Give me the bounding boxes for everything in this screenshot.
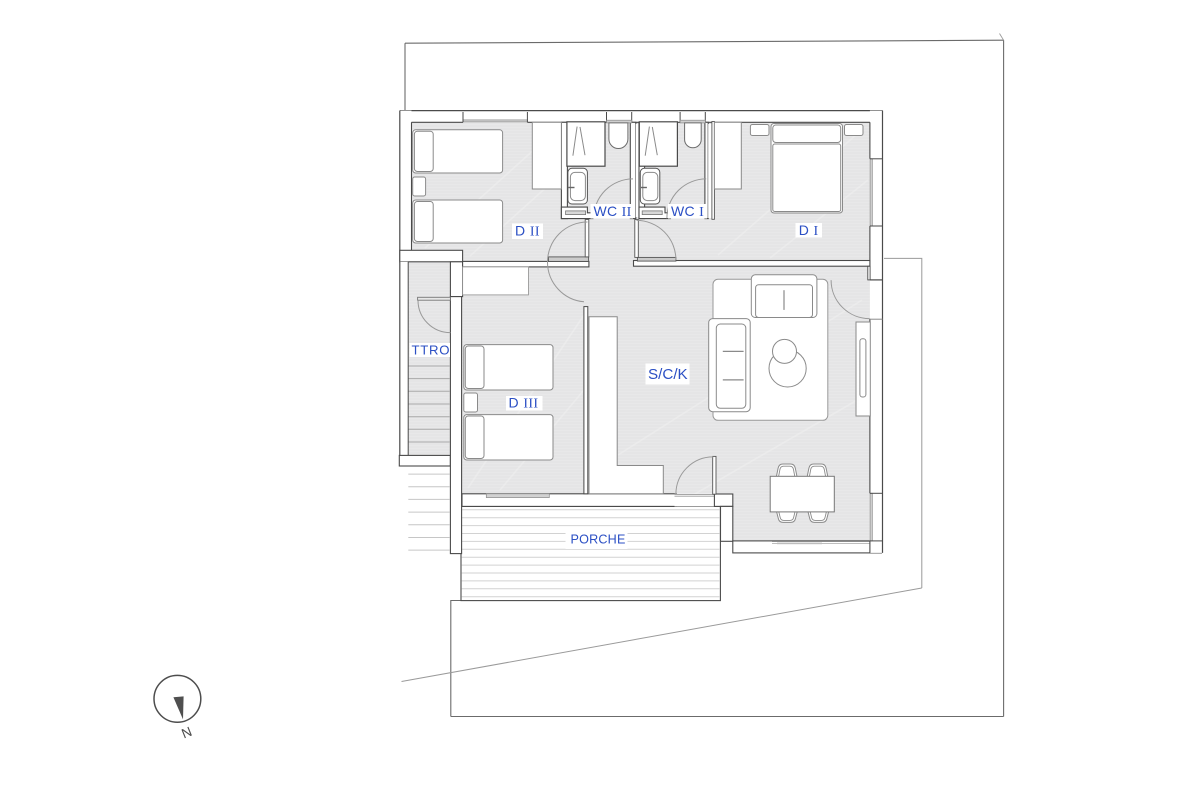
svg-text:D II: D II xyxy=(515,222,540,239)
svg-text:PORCHE: PORCHE xyxy=(571,533,626,547)
svg-text:WC II: WC II xyxy=(594,203,632,220)
svg-text:D III: D III xyxy=(509,395,539,412)
svg-text:WC I: WC I xyxy=(671,203,704,220)
svg-text:S/C/K: S/C/K xyxy=(648,366,688,383)
svg-text:TTRO: TTRO xyxy=(412,342,451,357)
svg-text:D I: D I xyxy=(799,222,819,239)
